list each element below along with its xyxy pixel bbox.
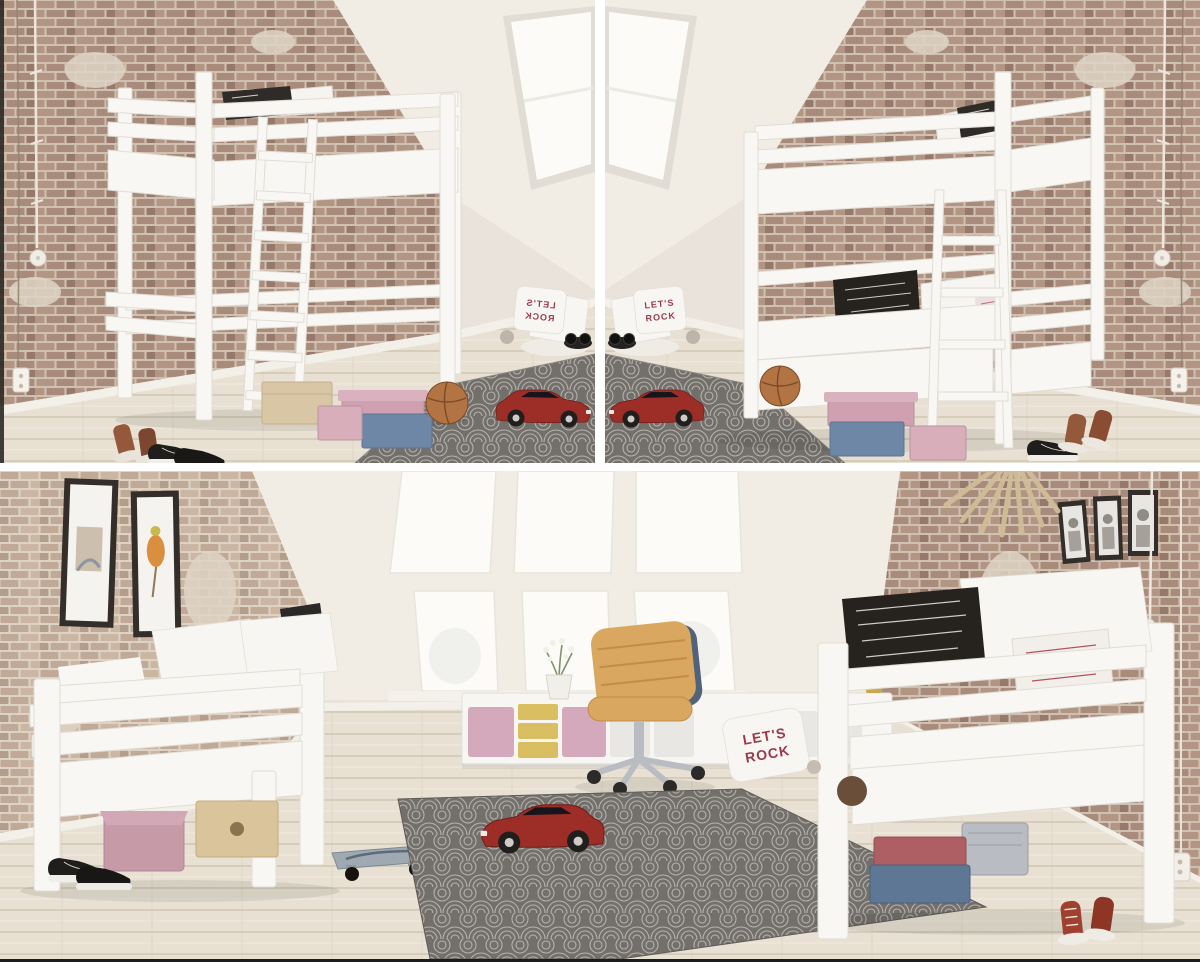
yellow-bins — [518, 704, 558, 758]
pompom — [807, 760, 821, 774]
pink-bin — [468, 707, 514, 757]
basketball — [760, 366, 800, 406]
rock-floor-pillow: LET'S ROCK — [721, 707, 811, 784]
panel-loft-bed — [0, 0, 595, 463]
panel-single-beds: LET'S ROCK — [0, 471, 1200, 959]
photo-frames — [1057, 490, 1158, 564]
photo-edge — [0, 0, 4, 463]
plywood-box — [196, 801, 278, 857]
basketball — [426, 382, 468, 424]
panel-bunk-bed — [605, 0, 1200, 463]
photo-collage: LET'S ROCK — [0, 0, 1200, 962]
pink-fabric-box — [100, 811, 188, 871]
basketball-shaded — [837, 776, 867, 806]
